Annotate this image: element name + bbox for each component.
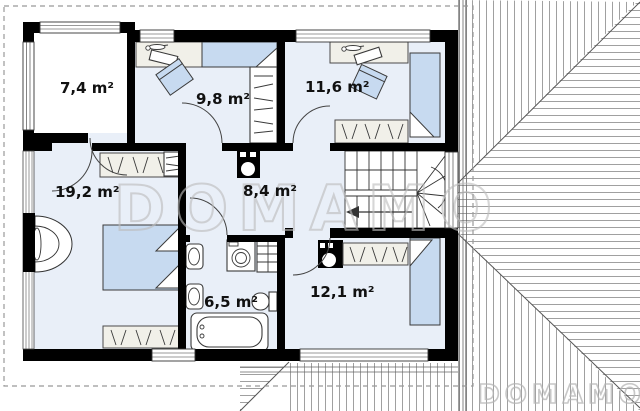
room-label: 19,2 m²	[55, 183, 119, 201]
knee-wall	[23, 151, 35, 349]
window	[300, 349, 428, 361]
window	[23, 42, 34, 130]
sink-icon	[186, 284, 203, 309]
window	[140, 30, 174, 42]
window	[152, 349, 195, 361]
wardrobe-icon	[335, 120, 408, 143]
bathtub-icon	[191, 313, 268, 351]
floor-plan: DOMAMO DOMAMO 7,4 m² 9,8 m² 11,6 m² 19,2…	[0, 0, 640, 411]
sink-icon	[186, 244, 203, 269]
watermark-large: DOMAMO	[114, 172, 502, 245]
room-label: 12,1 m²	[310, 283, 374, 301]
window	[296, 30, 430, 42]
room-label: 11,6 m²	[305, 78, 369, 96]
window	[40, 22, 120, 33]
room-label: 9,8 m²	[196, 90, 250, 108]
watermark-small: DOMAMO	[478, 380, 640, 410]
wardrobe-icon	[103, 326, 180, 348]
room-label: 8,4 m²	[243, 182, 297, 200]
room-label: 7,4 m²	[60, 79, 114, 97]
room-label: 6,5 m²	[204, 293, 258, 311]
